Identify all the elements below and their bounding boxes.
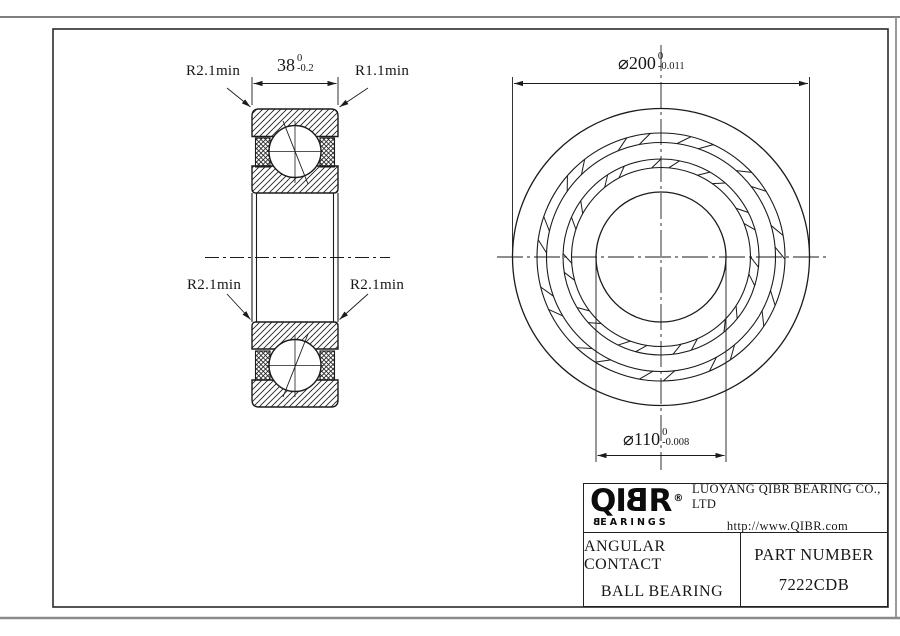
front-view: [497, 45, 827, 470]
product-type-cell: ANGULAR CONTACT BALL BEARING: [584, 533, 741, 607]
part-number-cell: PART NUMBER 7222CDB: [741, 533, 887, 607]
leader-top-right: [340, 88, 369, 107]
leader-bottom-left: [227, 294, 251, 320]
radius-label-top-left: R2.1min: [186, 63, 240, 80]
qibr-logo: QIBR® BEARINGS: [584, 484, 692, 532]
part-number-value: 7222CDB: [779, 575, 849, 595]
company-name: LUOYANG QIBR BEARING CO., LTD: [692, 482, 883, 512]
registered-mark-icon: ®: [673, 493, 683, 504]
bore-diameter-text: ⌀110 0-0.008: [623, 430, 689, 448]
cage-right-top: [320, 138, 335, 167]
title-block: QIBR® BEARINGS LUOYANG QIBR BEARING CO.,…: [583, 483, 888, 607]
radius-label-bottom-left: R2.1min: [187, 277, 241, 294]
leader-bottom-right: [340, 294, 369, 320]
company-website: http://www.QIBR.com: [727, 519, 848, 534]
bearing-drawing-sheet: R2.1min R1.1min R2.1min R2.1min 38 0-0.2…: [0, 0, 900, 636]
cage-left-top: [256, 138, 271, 167]
leader-top-left: [227, 88, 251, 107]
radius-label-bottom-right: R2.1min: [350, 277, 404, 294]
part-number-label: PART NUMBER: [754, 545, 874, 565]
section-view: [205, 109, 390, 407]
width-dimension-text: 38 0-0.2: [277, 56, 314, 74]
radius-label-top-right: R1.1min: [355, 63, 409, 80]
outer-diameter-text: ⌀200 0-0.011: [618, 54, 685, 72]
